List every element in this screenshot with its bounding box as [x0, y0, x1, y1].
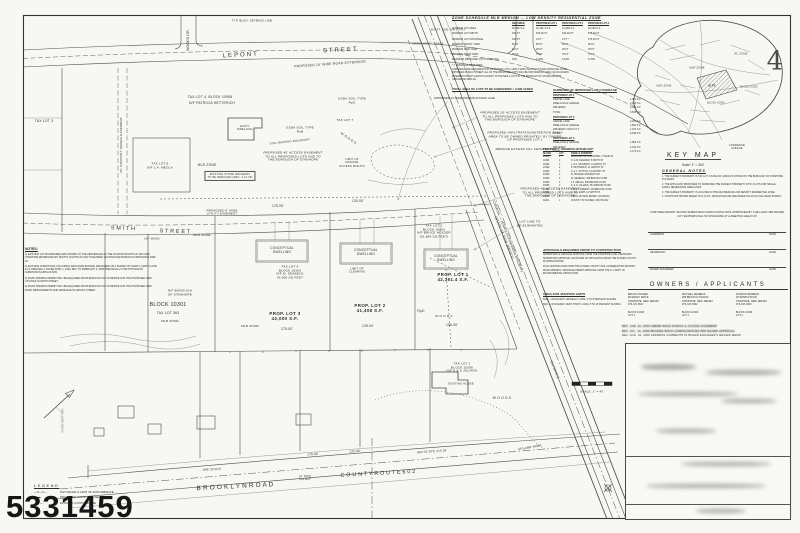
zone-row-required: 25 FT: [512, 48, 536, 51]
plan-label: S T R E E T: [323, 47, 357, 56]
plan-label: 20' SANITARY SEWER EASEMENT: [120, 117, 124, 173]
owner-name: P. HETTERICH, 11 LEPONT ST: [571, 167, 641, 169]
zone-schedule-title: ZONE SCHEDULE MLR MEDIUM — LOW DENSITY R…: [452, 16, 614, 20]
owner-name: J. & C. MCGRATH, 9 LEPONT ST: [571, 164, 641, 166]
zone-row-lot3: 5.76%: [588, 58, 614, 61]
plan-label: BLOCK 10301: [150, 302, 187, 308]
plan-label: LOT LINE TO BE ELIMINATED: [517, 220, 543, 227]
owner-lot: 1: [559, 156, 571, 158]
coverage-item: GRAVEL LANE: [553, 98, 570, 101]
owner-block: 10302: [543, 164, 559, 166]
plan-label: TYP. BLDG. SETBACK LINE: [232, 19, 272, 22]
coverage-item: DWELLING & GARAGE: [553, 124, 579, 127]
owner-applicant-entry: MICHAEL SEABECK 259 BROOKLYN ROAD STANHO…: [682, 293, 734, 318]
coverage-row: PROPOSED LOT 1: [553, 94, 641, 97]
plan-label: TAX LOT 1 BLOCK 10306 N/F K & S JULIANO: [446, 363, 477, 374]
zone-row-label: MINIMUM LOT AREA: [452, 27, 512, 30]
general-note-item: 3. THE SUBJECT PROPERTY IS LOCATED IN TH…: [662, 191, 784, 194]
coverage-item: PROPOSED LOT 1: [553, 94, 574, 97]
zone-row-lot2: 150.00 FT: [562, 32, 588, 35]
coverage-row: DWELLING & GARAGE 1,863 S.F.: [553, 141, 641, 144]
plan-label: 175.00': [272, 205, 284, 209]
zone-row-label: MINIMUM LOT FRONTAGE: [452, 38, 512, 41]
zone-row-lot1: 25 FT: [536, 48, 562, 51]
owner-lot: 1: [559, 200, 571, 202]
plan-label: 175.00': [307, 453, 319, 457]
signature-row: CHAIRMAN DATE: [648, 232, 786, 237]
title-block-divider: [626, 456, 790, 457]
plan-label: MLR ZONE: [241, 325, 259, 329]
zone-row-required: 40,000 S.F.: [512, 27, 536, 30]
plan-label: W O O D S: [493, 396, 512, 400]
owner-block: 10306: [543, 185, 559, 187]
zone-row-lot1: 0 FT *: [536, 38, 562, 41]
coverage-item: TOTAL: [553, 111, 561, 114]
zone-row-required: 150 FT: [512, 32, 536, 35]
scan-number-stamp: 5331459: [6, 489, 134, 525]
plan-label: PROP. LOT 3 42,000 S.F.: [269, 311, 300, 321]
plan-label: LAWRENCE AVENUE: [729, 144, 745, 150]
coverage-row: DWELLING & GARAGE 1,863 S.F.: [553, 124, 641, 127]
coverage-item: DWELLING & GARAGE: [553, 141, 579, 144]
plan-sheet: L E P O N TS T R E E TPROPOSED 24' WIDE …: [0, 0, 800, 533]
smudge-mark: [706, 370, 781, 375]
plan-label: 175.00': [281, 328, 293, 332]
coverage-value: 1,863 S.F.: [630, 124, 641, 127]
owner-name: COUNTY OF SUSSEX, ROUTE 602: [571, 200, 641, 202]
smudge-mark: [646, 484, 766, 488]
zone-schedule-row: MINIMUM SIDE YARD 25 FT 25 FT 25 FT 25 F…: [452, 48, 614, 51]
plan-label: PROPOSED 20' ACCESS EASEMENT TO ALL PROP…: [480, 112, 539, 123]
owner-block: 10901: [543, 196, 559, 198]
plan-label: USDA SOIL TYPE RpD: [338, 97, 366, 104]
plan-label: USDA SOIL TYPE RoB: [286, 126, 314, 133]
notes-items: 1) EXISTING LOT BOUNDARIES ARE SHOWN TO …: [25, 253, 157, 292]
note-item: 2) EXISTING CONDITIONS, INCLUDING WETLAN…: [25, 265, 157, 275]
zone-schedule-footnote: * = VARIANCE REQUIRED: [452, 64, 614, 67]
plan-label: W O O D S: [435, 315, 452, 319]
coverage-item: GRAVEL LANE: [553, 120, 570, 123]
owner-name: T. & D. FORREST, 249 BROOKLYN RD: [571, 189, 641, 191]
coverage-value: 2,000 S.F.: [630, 106, 641, 109]
plan-label: W O O D S: [339, 132, 356, 146]
note-item: 1) EXISTING LOT BOUNDARIES ARE SHOWN TO …: [25, 253, 157, 263]
plan-label: C O U N T Y R O U T E 6 0 2: [340, 469, 415, 479]
plan-label: N84°51'29"E 215.28': [417, 449, 448, 455]
general-notes-items: 1. THE SUBJECT PROPERTY IS TAX LOT 1 IN …: [662, 175, 784, 199]
plan-label: TAX LOT 8 N/F J.A. MEOLA: [147, 162, 173, 169]
zone-row-required: 75 FT: [512, 53, 536, 56]
property-owners-column: LOT: [559, 153, 571, 155]
zone-row-required: 150 FT: [512, 38, 536, 41]
coverage-row: DWELLING & GARAGE 2,254 S.F.: [553, 102, 641, 105]
zone-schedule-note: VARIANCES ARE REQUIRED FOR PROPOSED LOTS…: [452, 69, 572, 82]
plan-label: SOIL MAPPING BOUNDARY: [270, 138, 311, 146]
approvals-required-items: SUBDIVISION & VARIANCE APPROVAL FROM THE…: [543, 254, 640, 277]
general-note-item: 4. CONTOURS SHOWN REFER TO N.G.V.D. 1929…: [662, 195, 784, 198]
owner-name: STATE OF NEW JERSEY (CONRAIL): [571, 196, 641, 198]
signature-rows: CHAIRMAN DATE SECRETARY DATE BOARD ENGIN…: [648, 232, 786, 272]
plan-label: EXISTING STONE DRIVEWAY TO BE REMOVED (R…: [204, 171, 255, 181]
zone-row-label: MINIMUM SIDE YARD: [452, 48, 512, 51]
owner-lot: 4: [559, 182, 571, 184]
general-notes: GENERAL NOTES 1. THE SUBJECT PROPERTY IS…: [662, 169, 784, 199]
owner-name: B. HOLDER, MCKENZY DR: [571, 174, 641, 176]
plan-label: TAX LOT 4 BLOCK 10303 N/F M. SEABECK 42,…: [276, 266, 304, 281]
plan-label: MATCH EXIST. GRADE: [412, 42, 443, 45]
approvals-required-item: SUBDIVISION APPROVAL OR WAIVER OF APPLIC…: [543, 258, 640, 264]
plan-label: FILED MAP REF.: [61, 407, 64, 432]
plan-label: PROPOSED 24' WIDE ROAD EXTENSION: [294, 59, 366, 68]
owner-block: 10901: [543, 192, 559, 194]
key-map-caption: KEY MAP Scale: 1" = 300': [658, 144, 728, 167]
property-owners-column: NAME & ADDRESS: [571, 153, 641, 155]
property-owner-row: 10301 1 BOROUGH OF STANHOPE, 77 MAIN ST: [543, 156, 641, 158]
owner-block: 10302: [543, 171, 559, 173]
plan-label: 125.00': [352, 200, 364, 204]
owner-block: 11001: [543, 200, 559, 202]
signature-date-label: DATE: [769, 268, 776, 271]
approvals-required: APPROVALS REQUIRED PRIOR TO CONSTRUCTION…: [543, 248, 640, 276]
plan-label: PROPOSED 40' ACCESS EASEMENT TO ALL PROP…: [263, 152, 322, 163]
coverage-item: DRIVEWAY FOR LOT 3: [553, 128, 579, 131]
owner-lot: 2: [559, 178, 571, 180]
plan-label: PROP. LOT 1 42,361.4 S.F.: [437, 272, 468, 282]
coverage-row: PROPOSED LOT 3: [553, 137, 641, 140]
smudge-mark: [721, 399, 776, 403]
plan-label: TAX LOT 3: [35, 119, 53, 123]
owner-lot: 1: [559, 185, 571, 187]
smudge-mark: [638, 392, 738, 396]
owner-lot: 5: [559, 196, 571, 198]
smudge-mark: [641, 364, 696, 370]
plan-label: TAX LOT 4, BLOCK 10908: [188, 95, 233, 99]
owner-block: 10303: [543, 174, 559, 176]
zone-schedule-column: PROPOSED LOT 2: [562, 22, 588, 25]
plan-label: EXIST. DWELLING: [237, 125, 253, 131]
plan-label: N/F BOROUGH OF STANHOPE: [168, 289, 192, 296]
approvals-required-item: PLAN CERTIFICATION FROM THE SUSSEX COUNT…: [543, 266, 640, 269]
coverage-value: 2,254 S.F.: [630, 102, 641, 105]
property-owner-row: 10306 1 K. & S. JULIANO, 251 BROOKLYN RD: [543, 185, 641, 187]
revision-notes: REV. JAN. 22, 2009 AMEND ROAD RADIUS & A…: [622, 324, 790, 337]
zone-row-lot2: 4.18%: [562, 58, 588, 61]
owners-applicants: OWNERS / APPLICANTS BRUCE HOLDER MCKENZY…: [628, 282, 788, 318]
zone-row-label: MINIMUM REAR YARD: [452, 53, 512, 56]
usda-soils-title: USDA SOIL MAPPING UNITS: [543, 292, 640, 296]
plan-label: TAX LOT 363: [157, 311, 180, 315]
plan-label: N86°29'39"E: [203, 468, 222, 472]
owner-block: 10302: [543, 167, 559, 169]
zone-row-required: 15%: [512, 58, 536, 61]
zone-row-lot3: 42,000 S.F.: [588, 27, 614, 30]
notes-block: NOTES: 1) EXISTING LOT BOUNDARIES ARE SH…: [25, 247, 157, 292]
plan-label: TAX LOT 1 BLOCK 10303 N/F BRUCE HOLDER (…: [417, 225, 451, 240]
owner-name: K. & S. JULIANO, 251 BROOKLYN RD: [571, 185, 641, 187]
owner-name: J.A. MEOLA, 255 BROOKLYN RD: [571, 182, 641, 184]
owners-applicants-columns: BRUCE HOLDER MCKENZY DRIVE STANHOPE, NEW…: [628, 293, 788, 318]
owner-block: 10301: [543, 160, 559, 162]
plan-label: 125.00': [349, 450, 361, 454]
plan-label: LIMIT OF CLEARING: [349, 268, 365, 275]
zone-schedule-row: MINIMUM FRONT YARD 50 FT 50 FT 50 FT 50 …: [452, 43, 614, 46]
coverage-value: 3,024 S.F.: [630, 120, 641, 123]
plan-label: PROPOSED INFILTRATION/DETENTION BASIN AR…: [487, 132, 562, 143]
zone-row-lot1: 75 FT: [536, 53, 562, 56]
owner-name: BOROUGH OF STANHOPE, 77 MAIN ST: [571, 156, 641, 158]
zone-schedule: ZONE SCHEDULE MLR MEDIUM — LOW DENSITY R…: [452, 16, 614, 82]
zone-schedule-column: PROPOSED LOT 1: [536, 22, 562, 25]
total-area-note: TOTAL AREA OF LOTS TO BE SUBDIVIDED = 2.…: [452, 87, 557, 91]
plan-label: S M I T H: [111, 225, 136, 232]
property-owners-column: BLOCK: [543, 153, 559, 155]
coverage-value: 1,381 S.F.: [630, 98, 641, 101]
legend-title: LEGEND: [34, 483, 174, 488]
property-owner-row: 10302 3 S. & L. SUTTON, 13 LEPONT ST: [543, 171, 641, 173]
coverage-item: DWELLING & GARAGE: [553, 102, 579, 105]
zone-schedule-row: MINIMUM LOT WIDTH 150 FT 150.00 FT 150.0…: [452, 32, 614, 35]
plan-label: MLR ZONE: [193, 234, 211, 238]
plan-label: S T R E E T: [160, 228, 191, 235]
plan-label: MLR ZONE: [198, 164, 217, 168]
general-note-item: 2. THE APPLICANT PROPOSES TO SUBDIVIDE T…: [662, 183, 784, 189]
approval-signature-block: THIS PRELIMINARY MAJOR SUBDIVISION APPLI…: [648, 211, 786, 271]
plan-label: EXISTING HOUSE: [448, 382, 474, 385]
owner-name: S. & L. SUTTON, 13 LEPONT ST: [571, 171, 641, 173]
zone-row-lot3: 175.00 FT: [588, 32, 614, 35]
plan-label: B R O O K L Y N R O A D: [196, 481, 273, 493]
zone-schedule-header: REQUIREDPROPOSED LOT 1PROPOSED LOT 2PROP…: [452, 22, 614, 25]
plan-label: LIMIT OF PRIVATE ACCESS RIGHTS: [339, 158, 364, 168]
plan-label: N/F PATRICIA HETTERICH: [189, 101, 235, 105]
plan-label: CONCEPTUAL DWELLING: [434, 255, 458, 263]
coverage-value: 1,152 S.F.: [630, 128, 641, 131]
zone-row-lot1: 50 FT: [536, 43, 562, 46]
zone-row-label: MAXIMUM IMPROVED LOT COVERAGE: [452, 58, 512, 61]
approvals-required-item: SUBDIVISION & VARIANCE APPROVAL FROM THE…: [543, 254, 640, 257]
plan-label: UPLAND AREA: [518, 444, 542, 452]
owner-lot: 1: [559, 164, 571, 166]
owner-name: R. & M. DEGRAW, 5 SMITH ST: [571, 160, 641, 162]
coverage-row: DRIVEWAY FOR LOT 3 1,152 S.F.: [553, 128, 641, 131]
owner-lot: 1: [559, 192, 571, 194]
owner-lot: 2: [559, 167, 571, 169]
signature-role: BOARD ENGINEER: [650, 268, 674, 271]
revision-line: REV. JAN. 22, 2009 AMEND ROAD RADIUS & A…: [622, 325, 790, 328]
plan-label: 4: [767, 47, 784, 78]
zone-row-lot2: 75 FT: [562, 53, 588, 56]
plan-label: WOODS DR.: [186, 29, 190, 51]
coverage-row: DRIVEWAY 2,000 S.F.: [553, 106, 641, 109]
signature-date-label: DATE: [769, 233, 776, 236]
plan-label: PROP. LOT 2 41,408 S.F.: [354, 303, 385, 313]
plan-label: 196.30': [446, 324, 458, 328]
property-owner-row: 10303 2 M. SEABECK, 259 BROOKLYN RD: [543, 178, 641, 180]
property-owner-row: 10303 4 J.A. MEOLA, 255 BROOKLYN RD: [543, 182, 641, 184]
owner-block: 10303: [543, 182, 559, 184]
coverage-item: DRIVEWAY: [553, 106, 566, 109]
property-owner-row: 11001 1 COUNTY OF SUSSEX, ROUTE 602: [543, 200, 641, 202]
plan-label: S51°29'50"E: [549, 360, 560, 380]
zone-row-lot3: 50 FT: [588, 43, 614, 46]
plan-label: L E P O N T: [223, 52, 257, 61]
key-map-title: KEY MAP: [665, 152, 721, 160]
coverage-item: PROPOSED LOT 2: [553, 116, 574, 119]
general-notes-title: GENERAL NOTES: [662, 169, 784, 173]
owner-name: M. SEABECK, 259 BROOKLYN RD: [571, 178, 641, 180]
plan-label: BLOCK 10901: [707, 103, 725, 106]
general-note-item: 1. THE SUBJECT PROPERTY IS TAX LOT 1 IN …: [662, 175, 784, 181]
property-owner-row: 10302 1 J. & C. MCGRATH, 9 LEPONT ST: [543, 164, 641, 166]
title-block: [625, 343, 791, 520]
signature-row: SECRETARY DATE: [648, 249, 786, 254]
coverage-value: 1,863 S.F.: [630, 141, 641, 144]
property-owner-row: 10301 2 R. & M. DEGRAW, 5 SMITH ST: [543, 160, 641, 162]
coverage-item: TOTAL: [553, 132, 561, 135]
zone-row-lot2: 0 FT *: [562, 38, 588, 41]
zone-schedule-rows: MINIMUM LOT AREA 40,000 S.F. 42,361.4 S.…: [452, 27, 614, 61]
coverage-rows: PROPOSED LOT 1 GRAVEL LANE 1,381 S.F. DW…: [553, 94, 641, 152]
zone-row-lot1: 42,361.4 S.F.: [536, 27, 562, 30]
owner-applicant-entry: BRUCE HOLDER MCKENZY DRIVE STANHOPE, NEW…: [628, 293, 680, 318]
zone-schedule-column: PROPOSED LOT 3: [588, 22, 614, 25]
zone-row-label: MINIMUM LOT WIDTH: [452, 32, 512, 35]
plan-label: MLR ZONE: [689, 66, 704, 69]
approvals-required-title: APPROVALS REQUIRED PRIOR TO CONSTRUCTION: [543, 248, 640, 252]
signature-role: SECRETARY: [650, 251, 666, 254]
revision-line: REV. AUG. 26, 2008 ADDRESS COMMENTS IN B…: [622, 334, 790, 337]
plan-label: 139.00': [362, 325, 374, 329]
zone-row-required: 50 FT: [512, 43, 536, 46]
usda-soils: USDA SOIL MAPPING UNITS RoB — ROCKAWAY G…: [543, 292, 640, 306]
plan-label: SITE: [708, 84, 716, 87]
plan-label: RpD: [417, 309, 424, 313]
signature-date-label: DATE: [769, 251, 776, 254]
coverage-summary: SUMMARY OF IMPROVED LOT COVERAGE PROPOSE…: [553, 88, 641, 153]
property-owners-header: BLOCKLOTNAME & ADDRESS: [543, 153, 641, 155]
smudge-mark: [696, 509, 746, 513]
zone-row-lot1: 150.00 FT: [536, 32, 562, 35]
owner-block: 10301: [543, 156, 559, 158]
zone-row-lot2: 50 FT: [562, 43, 588, 46]
property-owners-title: PROPERTY OWNERS WITHIN 200': [543, 147, 641, 151]
owner-lot: 2: [559, 160, 571, 162]
plan-label: PROPOSED 8' WIDE UTILITY EASEMENT: [207, 210, 238, 217]
property-owner-row: 10303 1 B. HOLDER, MCKENZY DR: [543, 174, 641, 176]
owner-block: 10306: [543, 189, 559, 191]
coverage-item: PROPOSED LOT 3: [553, 137, 574, 140]
usda-soil-item: RpD — ROCKAWAY VERY STONY LOAM, 8 TO 15 …: [543, 303, 640, 306]
plan-label: CONCEPTUAL DWELLING: [270, 247, 294, 255]
note-item: 4) ROAD OPENING PERMIT WILL BE REQUIRED …: [25, 285, 157, 292]
revision-line: REV. JUL. 10, 2008 REVISED ROAD CONFIGUR…: [622, 330, 790, 333]
property-owner-row: 10302 2 P. HETTERICH, 11 LEPONT ST: [543, 167, 641, 169]
property-owner-row: 10306 2 T. & D. FORREST, 249 BROOKLYN RD: [543, 189, 641, 191]
key-map-scale: Scale: 1" = 300': [658, 163, 728, 167]
plan-label: CONRAIL — (ERIE LACKAWANNA RAILWAY) (STA…: [488, 200, 524, 275]
zone-row-lot3: 75 FT: [588, 53, 614, 56]
owner-block: 10303: [543, 178, 559, 180]
note-item: 3) ROAD OPENING PERMIT WILL BE REQUIRED …: [25, 277, 157, 284]
property-owners-list: PROPERTY OWNERS WITHIN 200' BLOCKLOTNAME…: [543, 147, 641, 202]
owners-applicants-title: OWNERS / APPLICANTS: [628, 282, 788, 290]
plan-label: SCALE: 1" = 40': [580, 390, 604, 393]
plan-label: RC ZONE: [734, 52, 747, 55]
smudge-mark: [656, 429, 716, 433]
zone-row-lot3: 175.00 FT: [588, 38, 614, 41]
plan-label: MLR ZONE: [656, 84, 671, 87]
plan-label: 40' ROW TAX MAP: [299, 475, 312, 482]
coverage-row: GRAVEL LANE 3,024 S.F.: [553, 120, 641, 123]
zone-schedule-row: MINIMUM REAR YARD 75 FT 75 FT 75 FT 75 F…: [452, 53, 614, 56]
property-owners-rows: 10301 1 BOROUGH OF STANHOPE, 77 MAIN ST …: [543, 156, 641, 201]
coverage-value: 6,039 S.F.: [630, 132, 641, 135]
approval-paragraph: THIS PRELIMINARY MAJOR SUBDIVISION APPLI…: [648, 211, 786, 219]
access-lane-note: PROPOSED 24' WIDE PRIVATE ACCESS LANE: [434, 96, 534, 100]
zone-row-label: MINIMUM FRONT YARD: [452, 43, 512, 46]
zone-schedule-row: MAXIMUM IMPROVED LOT COVERAGE 15% 3.46% …: [452, 58, 614, 61]
zone-row-lot3: 25 FT: [588, 48, 614, 51]
coverage-row: TOTAL 5,635 S.F.: [553, 111, 641, 114]
owner-lot: 2: [559, 189, 571, 191]
zone-row-lot2: 41,408 S.F.: [562, 27, 588, 30]
property-owner-row: 10901 1 G. & A. RAPP, 12 SMITH ST: [543, 192, 641, 194]
coverage-row: PROPOSED LOT 2: [553, 116, 641, 119]
plan-label: CONCEPTUAL DWELLING: [354, 249, 378, 257]
owner-lot: 1: [559, 174, 571, 176]
zone-schedule-row: MINIMUM LOT FRONTAGE 150 FT 0 FT * 0 FT …: [452, 38, 614, 41]
plan-label: TAX LOT 7: [337, 119, 354, 123]
plan-label: MLR ZONE: [161, 320, 179, 324]
approvals-required-item: ROAD OPENING / DRAINAGE PERMIT APPROVAL …: [543, 270, 640, 276]
coverage-value: 5,635 S.F.: [630, 111, 641, 114]
coverage-row: TOTAL 6,039 S.F.: [553, 132, 641, 135]
owner-name: G. & A. RAPP, 12 SMITH ST: [571, 192, 641, 194]
zone-schedule-row: MINIMUM LOT AREA 40,000 S.F. 42,361.4 S.…: [452, 27, 614, 30]
smudge-mark: [681, 462, 771, 466]
property-owner-row: 10901 5 STATE OF NEW JERSEY (CONRAIL): [543, 196, 641, 198]
coverage-row: GRAVEL LANE 1,381 S.F.: [553, 98, 641, 101]
signature-row: BOARD ENGINEER DATE: [648, 267, 786, 272]
notes-title: NOTES:: [25, 247, 157, 251]
owner-lot: 3: [559, 171, 571, 173]
zone-row-lot2: 25 FT: [562, 48, 588, 51]
plan-label: (40' WIDE): [144, 237, 160, 240]
signature-role: CHAIRMAN: [650, 233, 664, 236]
zone-row-lot1: 3.46%: [536, 58, 562, 61]
usda-soil-item: RoB — ROCKAWAY GRAVELLY LOAM, 3 TO 8 PER…: [543, 298, 640, 301]
title-block-divider: [626, 504, 790, 505]
usda-soils-items: RoB — ROCKAWAY GRAVELLY LOAM, 3 TO 8 PER…: [543, 298, 640, 306]
owner-applicant-entry: SHARON SEABECK 26 SPARTA ROAD STANHOPE, …: [736, 293, 788, 318]
coverage-summary-title: SUMMARY OF IMPROVED LOT COVERAGE: [553, 88, 641, 92]
zone-schedule-column: REQUIRED: [512, 22, 536, 25]
plan-label: BLOCK 10303: [740, 87, 758, 90]
